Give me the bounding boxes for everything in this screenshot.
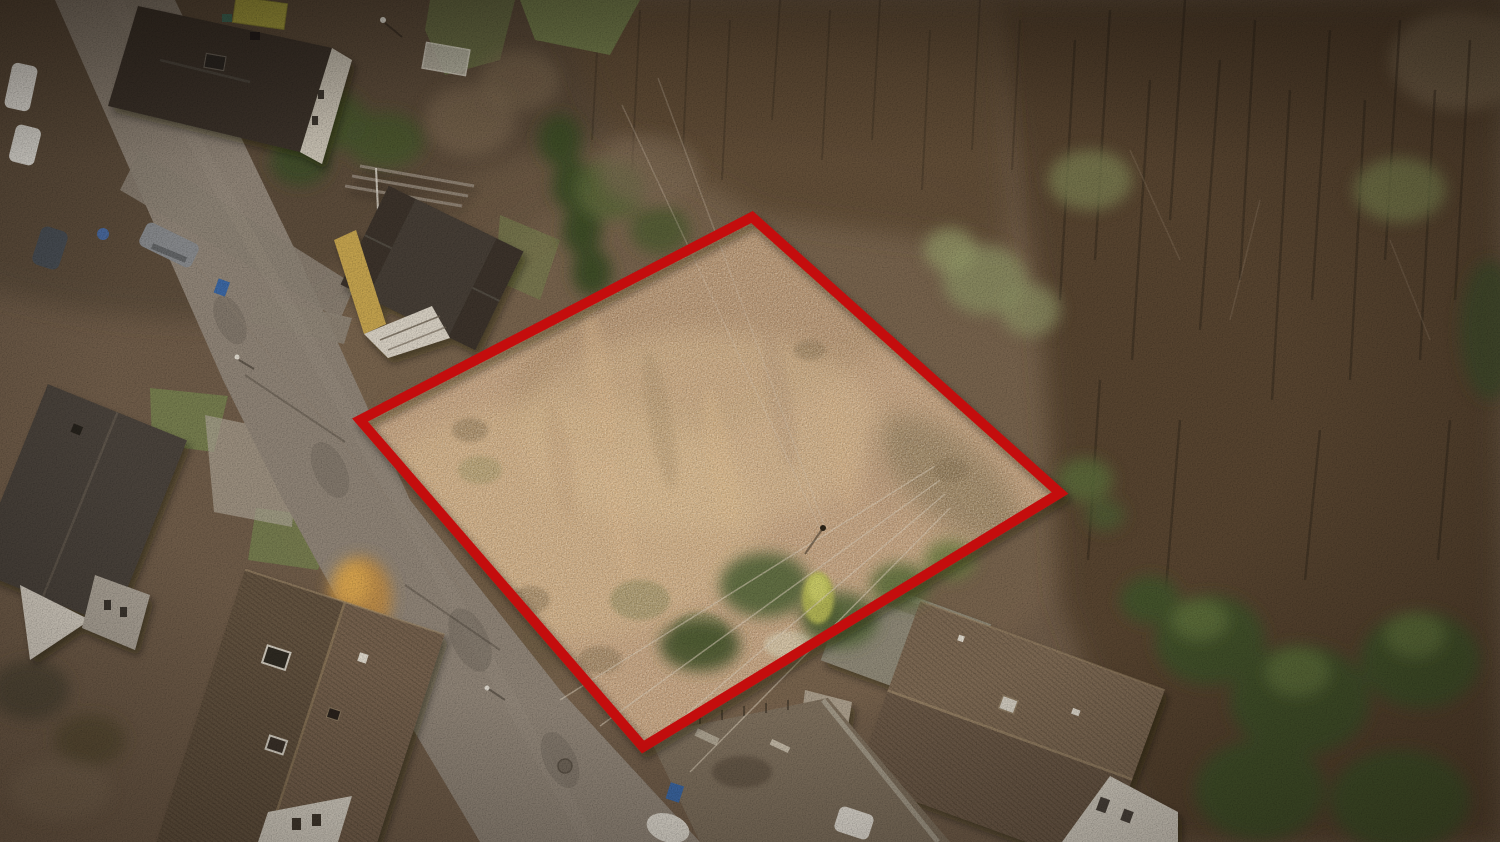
aerial-photo-stage <box>0 0 1500 842</box>
vignette <box>0 0 1500 842</box>
aerial-photo <box>0 0 1500 842</box>
